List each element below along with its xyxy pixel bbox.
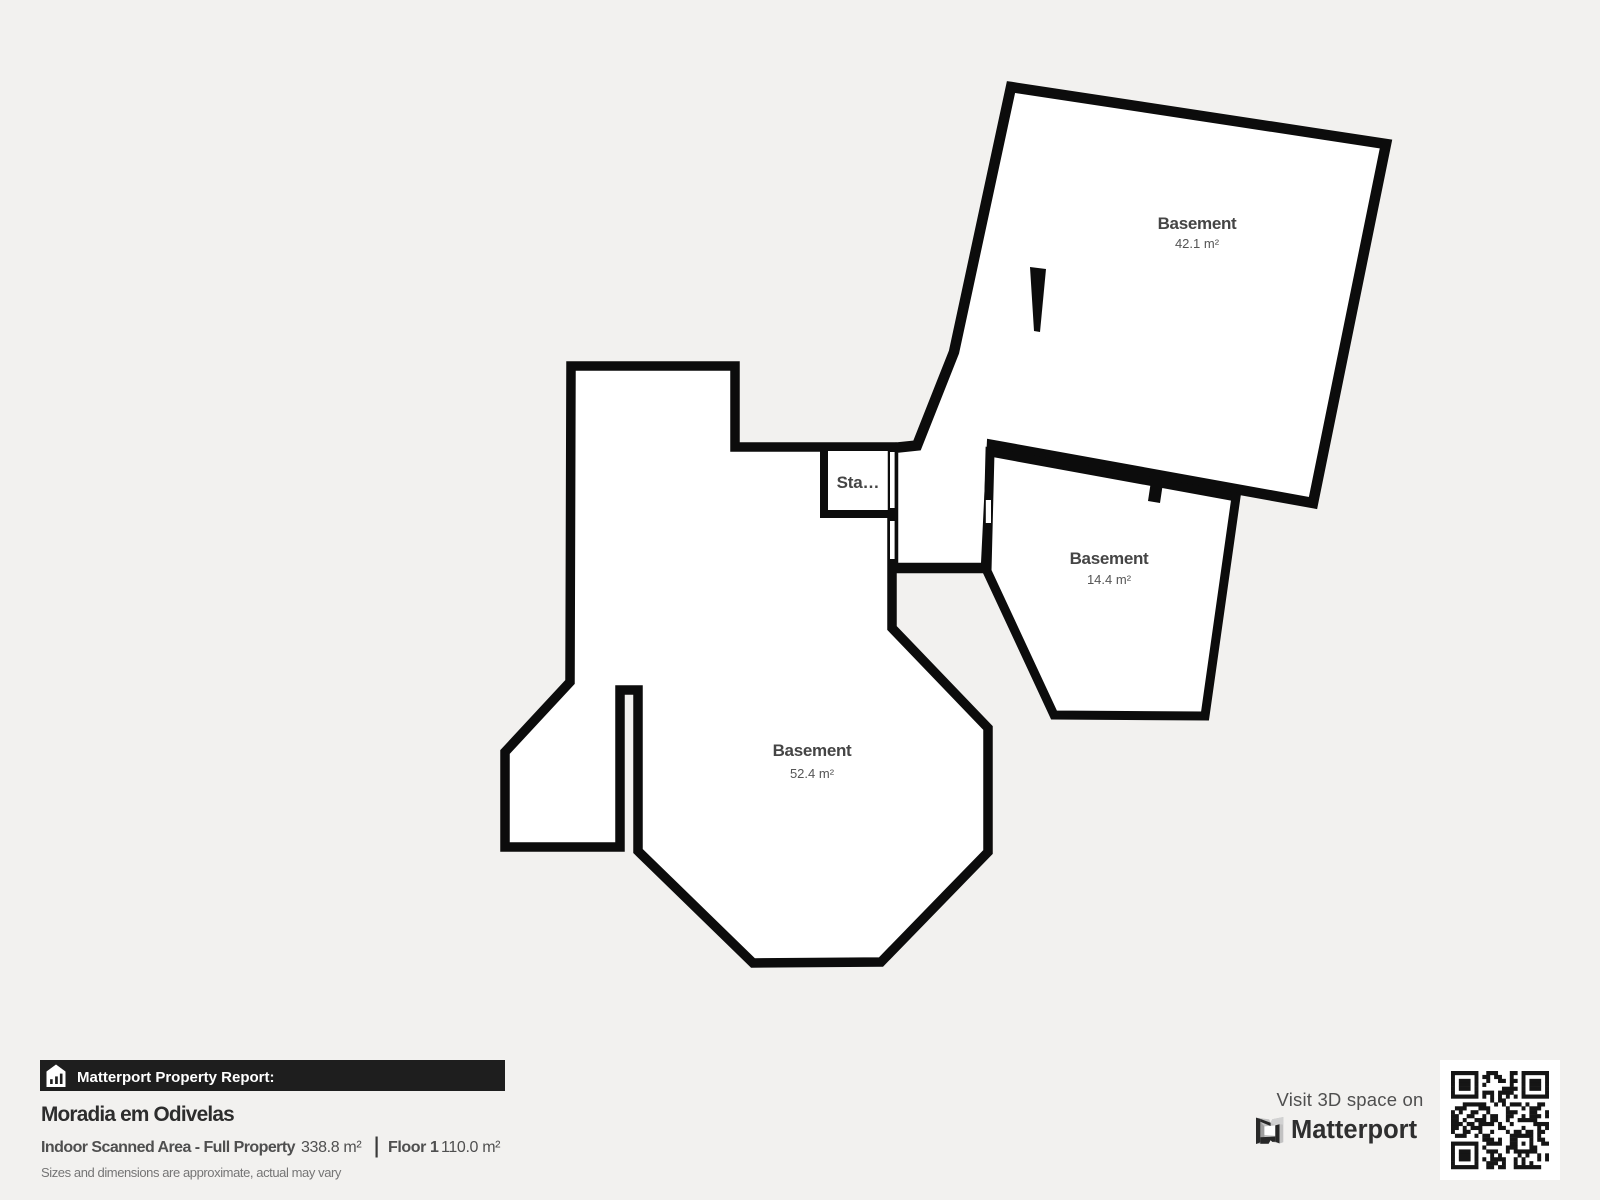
svg-text:Indoor Scanned Area - Full Pro: Indoor Scanned Area - Full Property [41, 1139, 296, 1156]
svg-text:Moradia em Odivelas: Moradia em Odivelas [41, 1103, 234, 1126]
svg-text:Sizes and dimensions are appro: Sizes and dimensions are approximate, ac… [41, 1165, 342, 1180]
svg-text:Basement: Basement [1070, 549, 1149, 568]
svg-text:Matterport Property Report:: Matterport Property Report: [77, 1069, 275, 1086]
svg-text:Visit 3D space on: Visit 3D space on [1276, 1089, 1423, 1110]
svg-text:338.8 m²: 338.8 m² [301, 1139, 362, 1156]
svg-text:42.1 m²: 42.1 m² [1175, 236, 1220, 251]
svg-text:Basement: Basement [1158, 214, 1237, 233]
svg-text:Basement: Basement [773, 741, 852, 760]
svg-text:Floor 1: Floor 1 [388, 1139, 439, 1156]
svg-text:Sta…: Sta… [837, 473, 880, 492]
svg-text:52.4 m²: 52.4 m² [790, 766, 835, 781]
svg-text:14.4 m²: 14.4 m² [1087, 572, 1132, 587]
svg-text:Matterport: Matterport [1291, 1116, 1418, 1144]
svg-text:110.0 m²: 110.0 m² [441, 1139, 501, 1156]
